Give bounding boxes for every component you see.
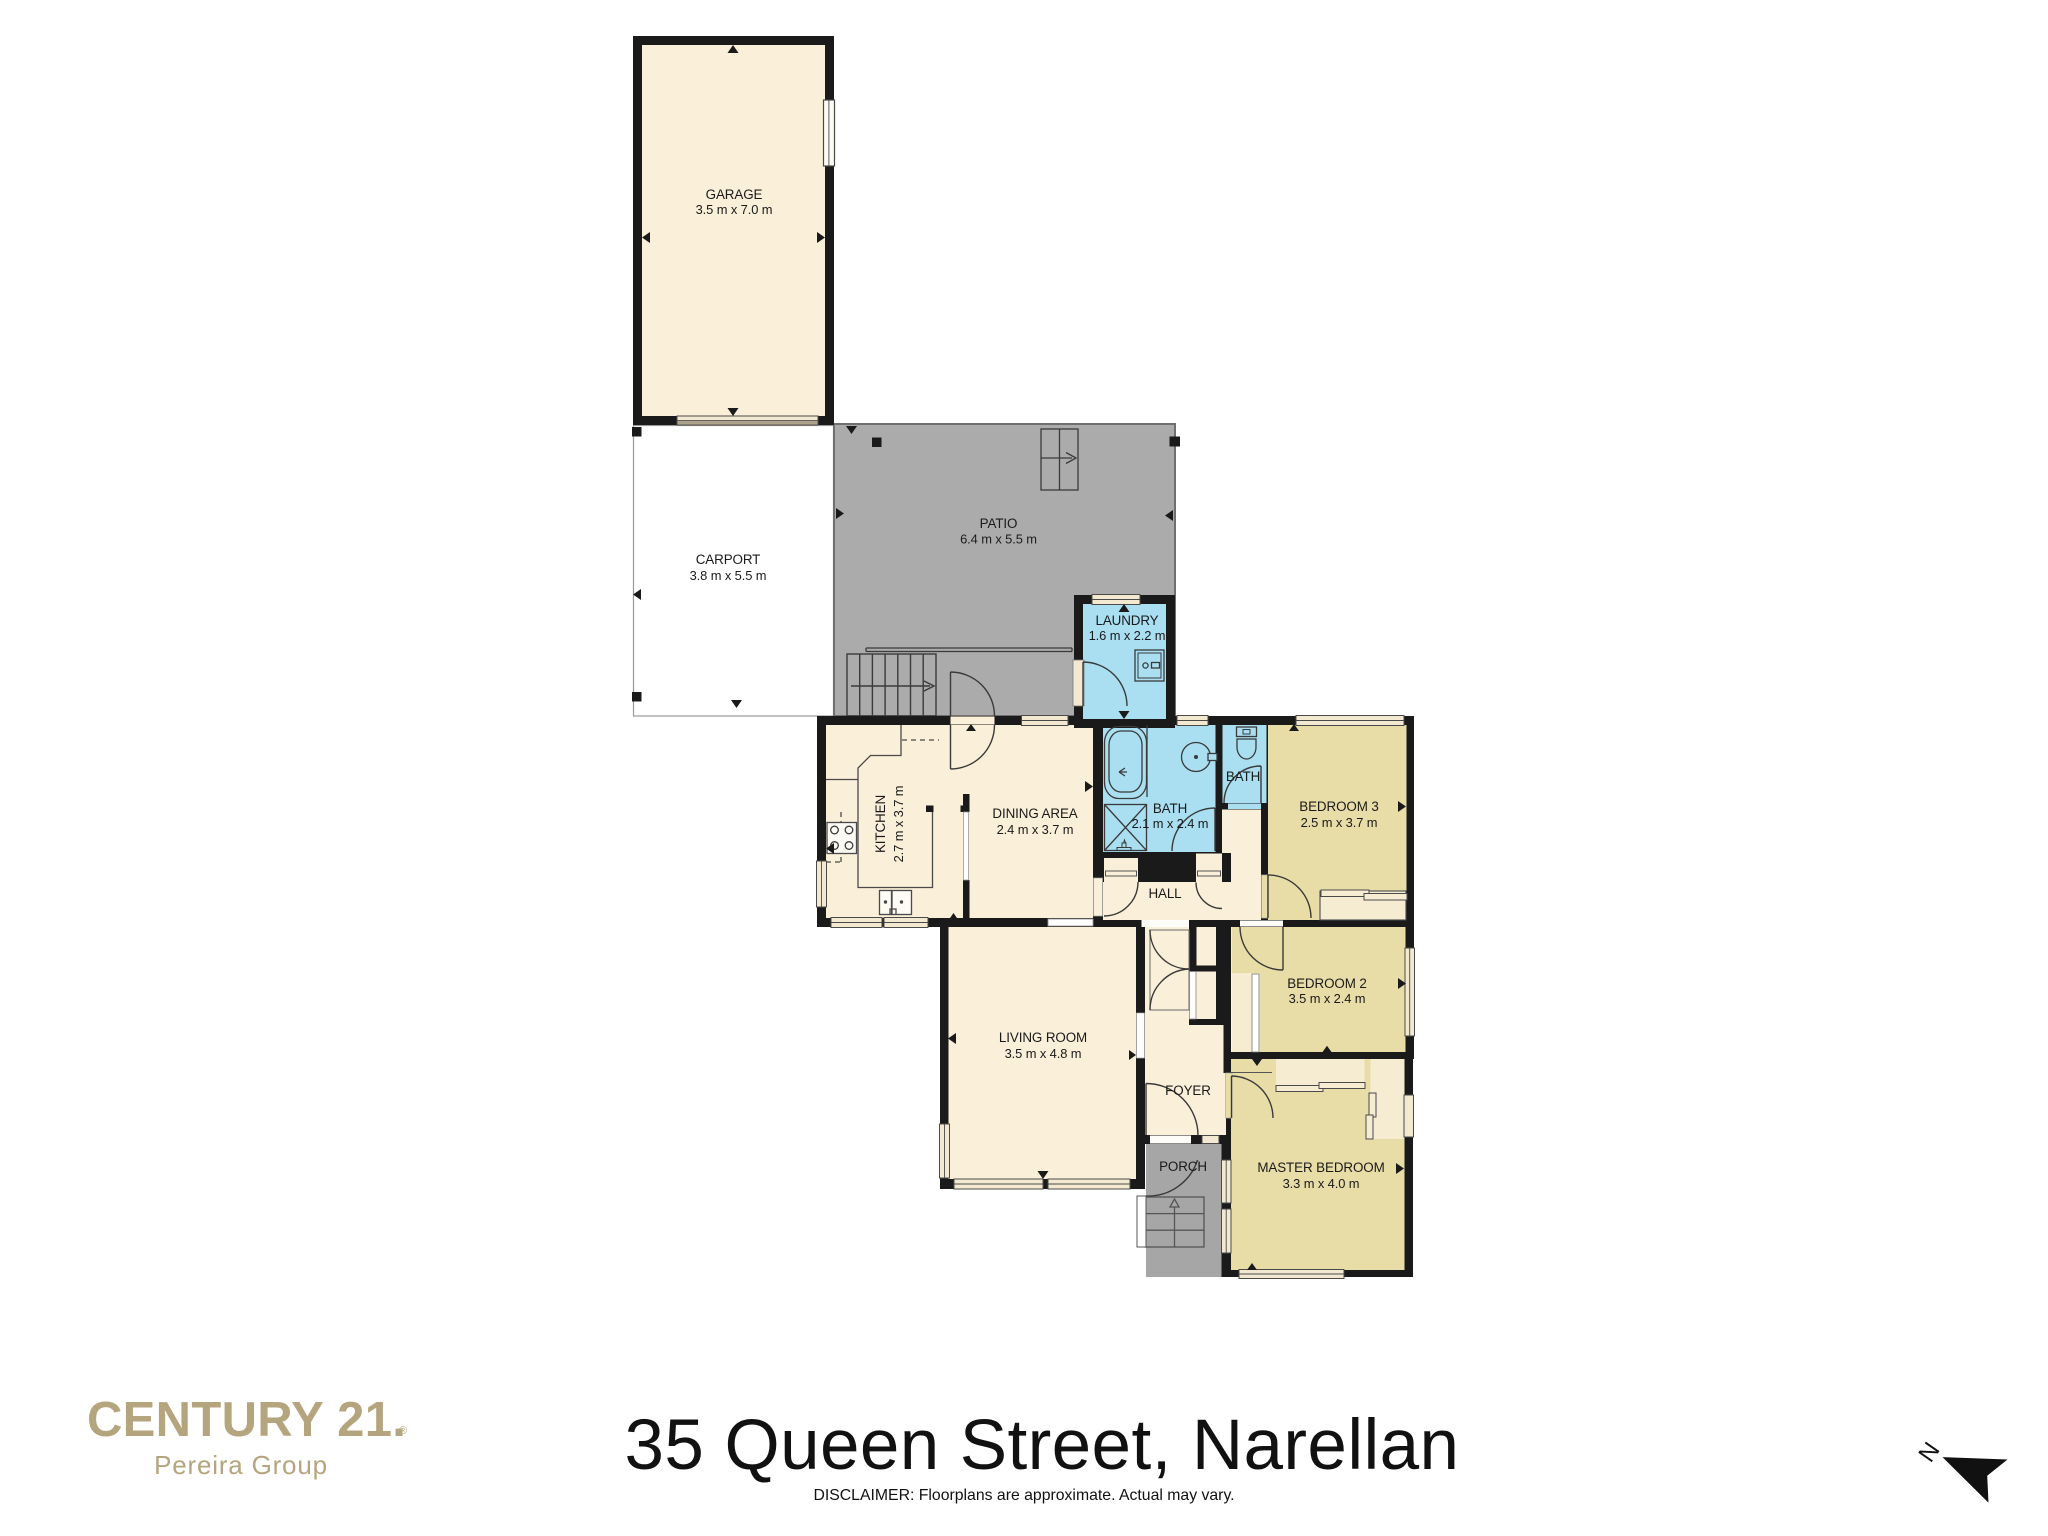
svg-text:3.8 m x 5.5 m: 3.8 m x 5.5 m bbox=[690, 568, 767, 583]
svg-text:3.5 m x 2.4 m: 3.5 m x 2.4 m bbox=[1289, 991, 1366, 1006]
svg-text:6.4 m x 5.5 m: 6.4 m x 5.5 m bbox=[960, 532, 1037, 547]
svg-text:GARAGE: GARAGE bbox=[706, 187, 763, 202]
svg-text:2.5 m x 3.7 m: 2.5 m x 3.7 m bbox=[1301, 815, 1378, 830]
svg-text:35 Queen Street, Narellan: 35 Queen Street, Narellan bbox=[625, 1406, 1460, 1485]
svg-text:3.3 m x 4.0 m: 3.3 m x 4.0 m bbox=[1283, 1176, 1360, 1191]
svg-text:2.7 m x 3.7 m: 2.7 m x 3.7 m bbox=[891, 786, 906, 863]
svg-text:2.4 m x 3.7 m: 2.4 m x 3.7 m bbox=[997, 822, 1074, 837]
svg-text:DISCLAIMER: Floorplans are app: DISCLAIMER: Floorplans are approximate. … bbox=[813, 1487, 1234, 1504]
svg-text:KITCHEN: KITCHEN bbox=[873, 795, 888, 853]
svg-text:BEDROOM 2: BEDROOM 2 bbox=[1287, 976, 1366, 991]
svg-text:N: N bbox=[1913, 1437, 1945, 1467]
svg-text:LAUNDRY: LAUNDRY bbox=[1095, 613, 1158, 628]
svg-text:BEDROOM 3: BEDROOM 3 bbox=[1299, 799, 1378, 814]
svg-text:1.6 m x 2.2 m: 1.6 m x 2.2 m bbox=[1089, 628, 1166, 643]
svg-text:PATIO: PATIO bbox=[980, 516, 1018, 531]
svg-text:DINING AREA: DINING AREA bbox=[992, 806, 1077, 821]
svg-text:3.5 m x 7.0 m: 3.5 m x 7.0 m bbox=[696, 202, 773, 217]
svg-text:®: ® bbox=[399, 1425, 407, 1437]
svg-text:2.1 m x 2.4 m: 2.1 m x 2.4 m bbox=[1132, 816, 1209, 831]
svg-text:BATH: BATH bbox=[1153, 801, 1187, 816]
svg-text:Pereira Group: Pereira Group bbox=[154, 1450, 328, 1480]
svg-text:PORCH: PORCH bbox=[1159, 1159, 1207, 1174]
svg-text:LIVING ROOM: LIVING ROOM bbox=[999, 1030, 1087, 1045]
svg-text:MASTER BEDROOM: MASTER BEDROOM bbox=[1257, 1160, 1384, 1175]
svg-text:3.5 m x 4.8 m: 3.5 m x 4.8 m bbox=[1005, 1046, 1082, 1061]
svg-text:HALL: HALL bbox=[1148, 886, 1181, 901]
svg-text:CENTURY 21.: CENTURY 21. bbox=[87, 1393, 406, 1447]
svg-text:BATH: BATH bbox=[1226, 769, 1260, 784]
svg-text:CARPORT: CARPORT bbox=[696, 552, 761, 567]
svg-text:FOYER: FOYER bbox=[1165, 1083, 1211, 1098]
